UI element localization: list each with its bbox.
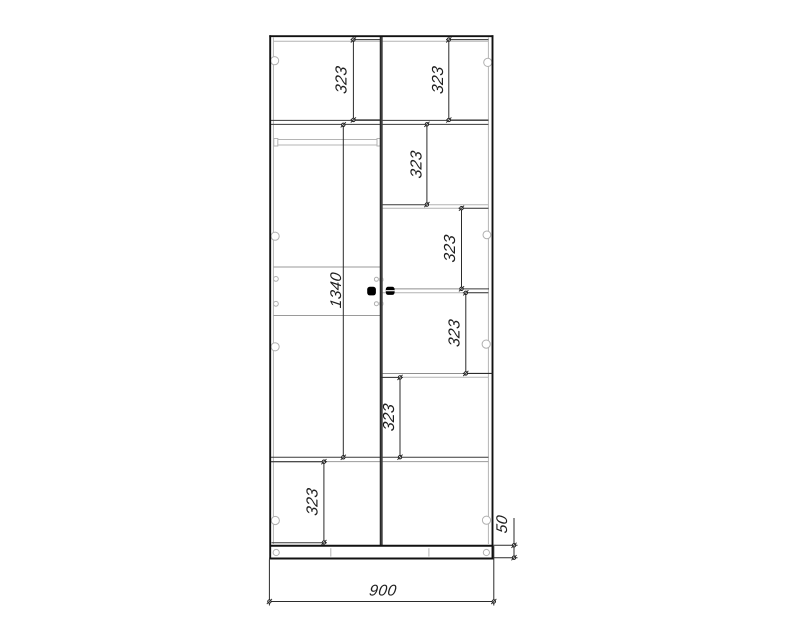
svg-text:1340: 1340 <box>328 271 345 309</box>
svg-text:323: 323 <box>446 318 464 348</box>
svg-text:323: 323 <box>333 65 351 95</box>
svg-text:323: 323 <box>408 150 426 180</box>
svg-text:323: 323 <box>380 402 398 432</box>
svg-text:900: 900 <box>368 583 398 600</box>
svg-text:323: 323 <box>429 65 447 95</box>
svg-text:50: 50 <box>494 514 511 534</box>
svg-text:323: 323 <box>303 487 321 517</box>
svg-text:323: 323 <box>441 234 459 264</box>
